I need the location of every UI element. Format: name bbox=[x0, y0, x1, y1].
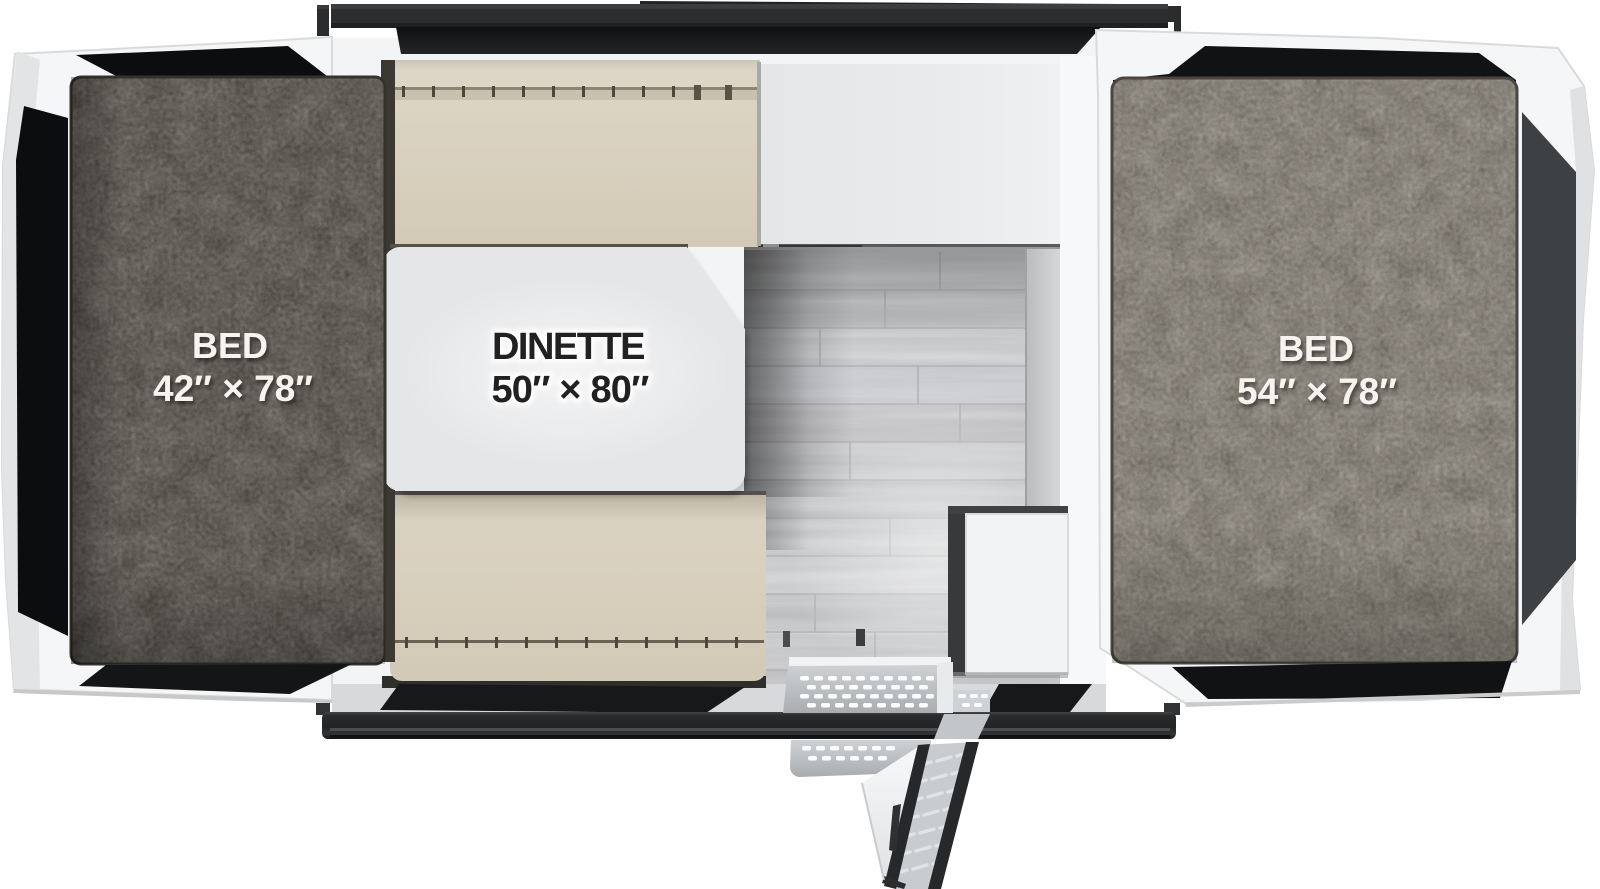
svg-text:42″ × 78″: 42″ × 78″ bbox=[153, 368, 313, 409]
svg-text:50″ × 80″: 50″ × 80″ bbox=[491, 369, 649, 411]
svg-text:DINETTE: DINETTE bbox=[492, 326, 644, 368]
svg-text:BED: BED bbox=[192, 325, 268, 366]
svg-text:54″ × 78″: 54″ × 78″ bbox=[1237, 371, 1397, 412]
svg-text:BED: BED bbox=[1278, 328, 1354, 369]
